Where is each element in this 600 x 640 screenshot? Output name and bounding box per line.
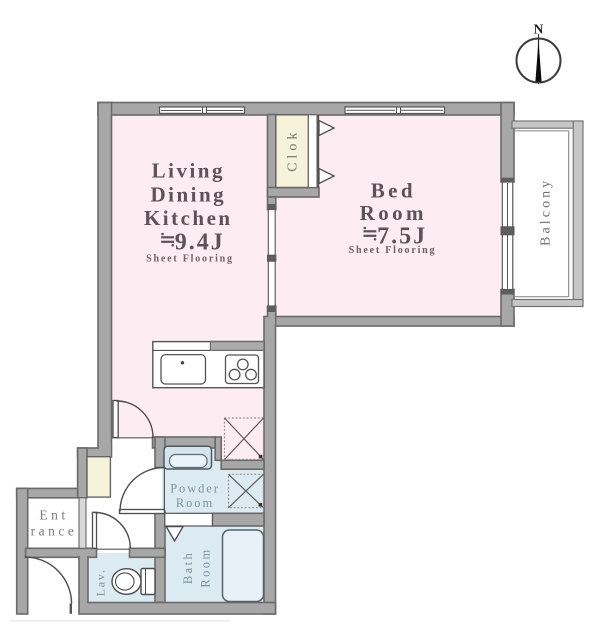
svg-text:Balcony: Balcony [539,178,554,246]
svg-text:Room: Room [360,201,427,225]
svg-text:9.4J: 9.4J [175,230,225,256]
svg-text:Powder: Powder [170,482,220,496]
svg-text:Bed: Bed [371,179,416,203]
svg-text:Room: Room [176,496,214,510]
svg-text:Dining: Dining [150,182,226,206]
svg-text:Room: Room [199,547,213,587]
svg-text:Sheet Flooring: Sheet Flooring [349,245,437,256]
svg-text:Bath: Bath [181,551,195,584]
svg-text:Kitchen: Kitchen [144,206,233,230]
svg-text:Living: Living [152,159,225,183]
svg-text:Ent: Ent [39,508,68,523]
svg-text:Sheet Flooring: Sheet Flooring [146,254,234,265]
svg-text:Lav.: Lav. [94,568,108,596]
svg-text:N: N [534,22,544,37]
svg-text:rance: rance [31,524,78,539]
svg-text:Clok: Clok [286,129,301,172]
